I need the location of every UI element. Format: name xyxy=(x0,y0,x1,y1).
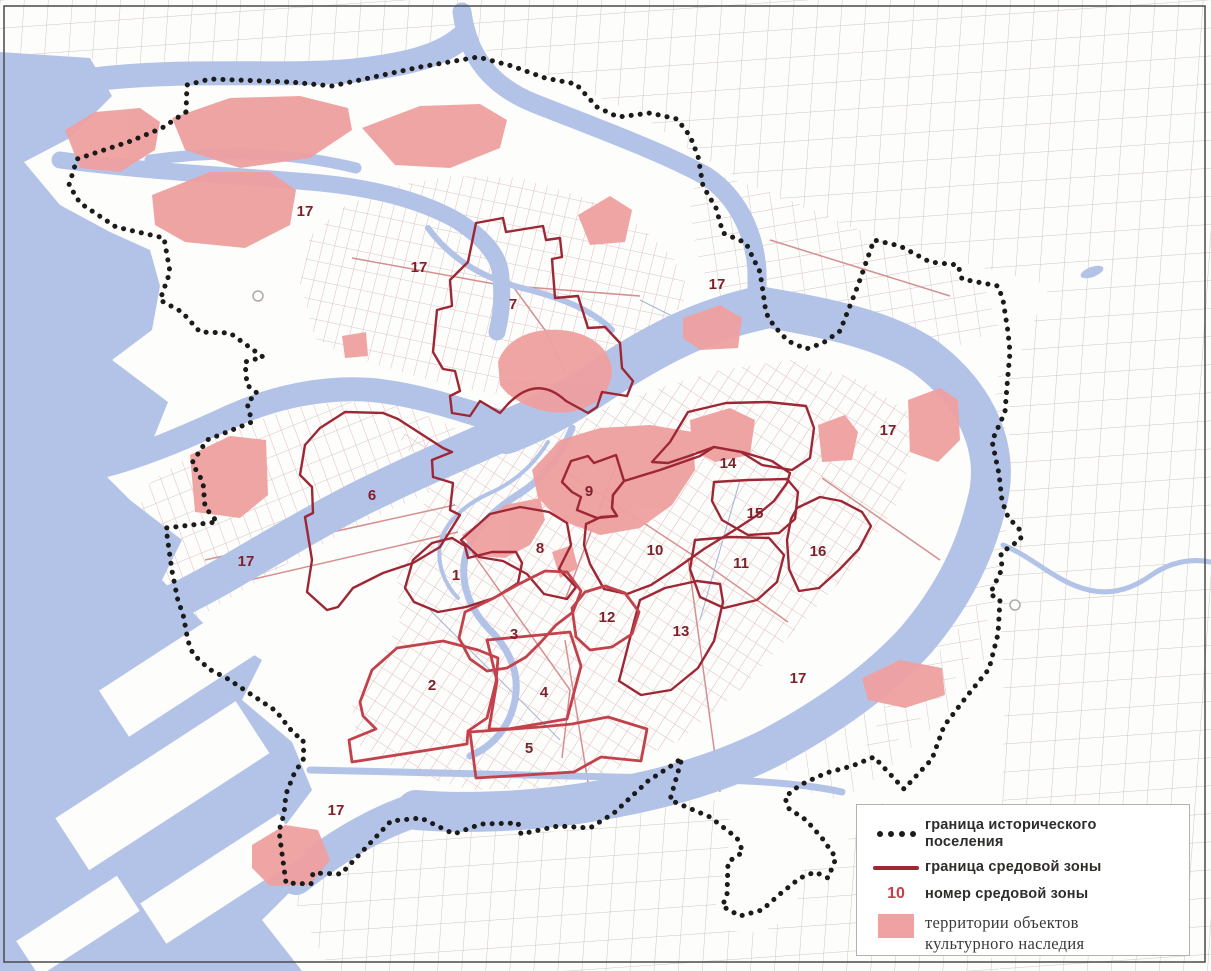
zone-label-17: 17 xyxy=(297,203,314,220)
zone-label-17: 17 xyxy=(880,422,897,439)
dotted-line-icon xyxy=(867,831,925,837)
zone-label-17: 17 xyxy=(238,553,255,570)
zone-label-2: 2 xyxy=(428,677,436,694)
zone-number-sample: 10 xyxy=(867,885,925,903)
legend-item-label: территории объектов культурного наследия xyxy=(925,912,1143,955)
pink-square-icon xyxy=(867,912,925,938)
zone-label-4: 4 xyxy=(540,684,549,701)
zone-label-1: 1 xyxy=(452,567,460,584)
legend-item-zone-number: 10 номер средовой зоны xyxy=(867,885,1179,903)
zone-label-17: 17 xyxy=(328,802,345,819)
zone-label-10: 10 xyxy=(647,542,664,559)
zone-label-12: 12 xyxy=(599,609,616,626)
map-page: 1 2 3 4 5 6 7 8 9 10 11 12 13 14 15 16 1… xyxy=(0,0,1211,971)
legend-item-zone-boundary: граница средовой зоны xyxy=(867,859,1179,876)
zone-label-17: 17 xyxy=(709,276,726,293)
zone-label-13: 13 xyxy=(673,623,690,640)
zone-label-16: 16 xyxy=(810,543,827,560)
zone-label-11: 11 xyxy=(733,555,749,572)
legend-item-label: граница средовой зоны xyxy=(925,859,1101,876)
red-line-icon xyxy=(867,866,925,870)
zone-label-17: 17 xyxy=(790,670,807,687)
zone-label-8: 8 xyxy=(536,540,544,557)
heritage-area xyxy=(342,332,368,358)
map-legend: граница исторического поселения граница … xyxy=(856,804,1190,956)
legend-item-label: граница исторического поселения xyxy=(925,817,1179,850)
zone-label-17: 17 xyxy=(411,259,428,276)
zone-label-5: 5 xyxy=(525,740,533,757)
zone-label-7: 7 xyxy=(509,296,517,313)
zone-label-14: 14 xyxy=(720,455,737,472)
legend-item-heritage-territories: территории объектов культурного наследия xyxy=(867,912,1179,955)
zone-label-6: 6 xyxy=(368,487,376,504)
legend-item-settlement-boundary: граница исторического поселения xyxy=(867,817,1179,850)
zone-label-3: 3 xyxy=(510,626,518,643)
zone-label-9: 9 xyxy=(585,483,593,500)
zone-label-15: 15 xyxy=(747,505,764,522)
legend-item-label: номер средовой зоны xyxy=(925,886,1088,903)
